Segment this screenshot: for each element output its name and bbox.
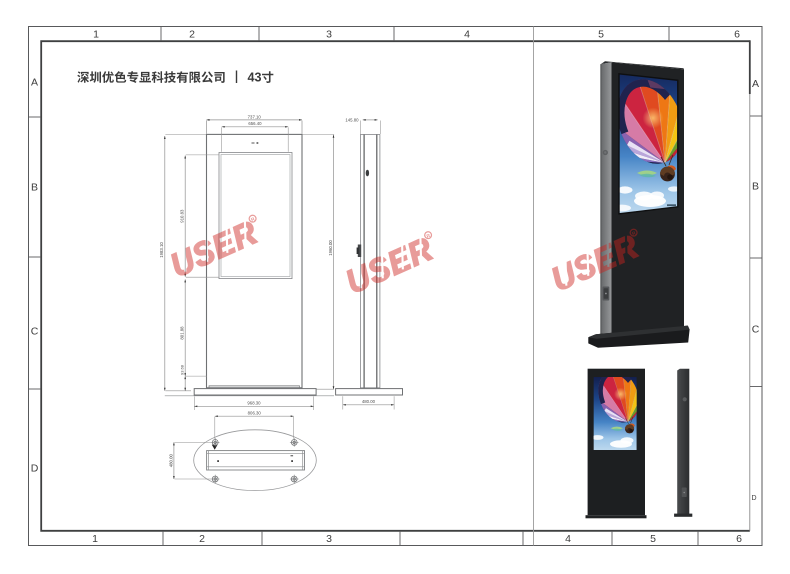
svg-text:480.00: 480.00 xyxy=(168,454,173,468)
svg-text:C: C xyxy=(31,326,39,338)
svg-text:D: D xyxy=(31,463,39,475)
svg-text:2: 2 xyxy=(199,533,205,545)
svg-text:B: B xyxy=(752,181,759,193)
svg-text:806.30: 806.30 xyxy=(248,411,262,416)
svg-text:1: 1 xyxy=(93,29,99,41)
svg-text:4: 4 xyxy=(565,533,571,545)
svg-text:5: 5 xyxy=(598,29,604,41)
svg-text:B: B xyxy=(31,182,38,194)
svg-text:480.00: 480.00 xyxy=(362,399,376,404)
svg-text:3: 3 xyxy=(326,533,332,545)
svg-text:6: 6 xyxy=(736,533,742,545)
svg-text:801.88: 801.88 xyxy=(180,326,185,340)
svg-text:A: A xyxy=(752,78,759,90)
svg-text:5: 5 xyxy=(650,533,656,545)
svg-text:43: 43 xyxy=(248,71,262,85)
svg-text:968.30: 968.30 xyxy=(247,401,261,406)
svg-text:93.68: 93.68 xyxy=(180,364,185,375)
svg-text:4: 4 xyxy=(464,29,470,41)
svg-text:3: 3 xyxy=(326,29,332,41)
svg-text:6: 6 xyxy=(734,29,740,41)
svg-text:1: 1 xyxy=(92,533,98,545)
svg-text:2: 2 xyxy=(189,29,195,41)
svg-text:A: A xyxy=(31,77,38,89)
svg-text:737.10: 737.10 xyxy=(248,114,262,119)
svg-text:656.40: 656.40 xyxy=(248,121,262,126)
svg-text:C: C xyxy=(752,324,760,336)
svg-text:D: D xyxy=(751,495,756,502)
svg-text:145.80: 145.80 xyxy=(345,118,359,123)
